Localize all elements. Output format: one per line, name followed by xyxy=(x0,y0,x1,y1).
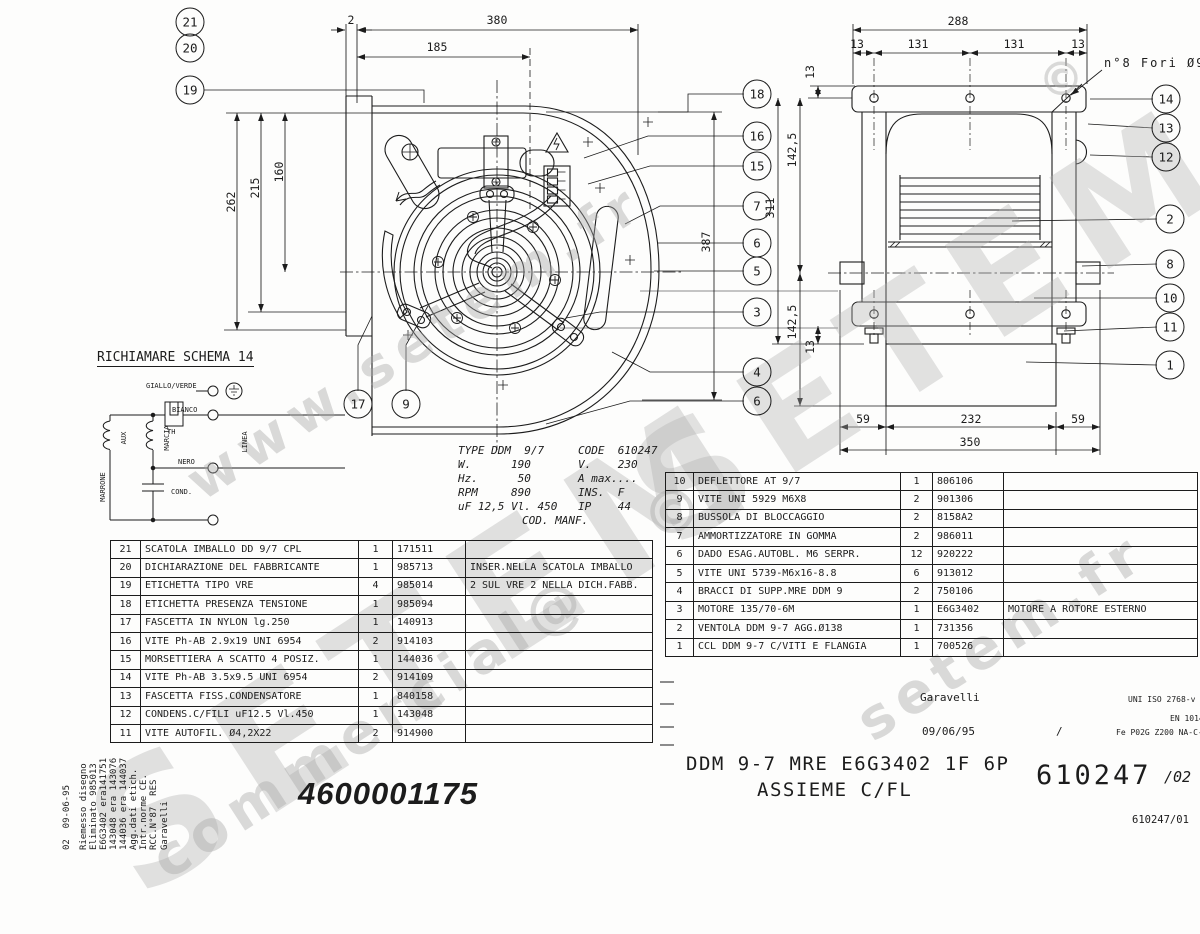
dim-side-s2: 131 xyxy=(1004,37,1025,51)
item-balloon-20: 20 xyxy=(176,34,205,63)
dim-front-h3: 262 xyxy=(224,192,238,213)
balloon-leaders xyxy=(204,90,1157,424)
revision-index: /02 xyxy=(1164,768,1191,786)
wire-label-aux: AUX xyxy=(120,432,128,445)
side-view-geometry xyxy=(828,58,1114,406)
table-row: 4BRACCI DI SUPP.MRE DDM 92750106 xyxy=(666,583,1198,601)
table-row: 6DADO ESAG.AUTOBL. M6 SERPR.12920222 xyxy=(666,546,1198,564)
item-balloon-13: 13 xyxy=(1152,114,1181,143)
dim-side-v13t: 13 xyxy=(803,65,817,79)
revision-line-3: E6G3402 era141751 xyxy=(99,758,109,850)
item-balloon-10: 10 xyxy=(1156,284,1185,313)
item-balloon-17: 17 xyxy=(344,390,373,419)
item-balloon-6: 6 xyxy=(743,387,772,416)
table-row: 10DEFLETTORE AT 9/71806106 xyxy=(666,473,1198,491)
revision-line-6: Agg.dati etich. xyxy=(129,769,139,850)
revision-line-9: Garavelli xyxy=(160,801,170,850)
dim-foot-r: 59 xyxy=(1071,412,1085,426)
table-row: 12CONDENS.C/FILI uF12.5 Vl.4501143048 xyxy=(111,706,653,724)
wiring-schematic xyxy=(103,383,345,525)
table-row: 5VITE UNI 5739-M6x16-8.86913012 xyxy=(666,564,1198,582)
item-balloon-18: 18 xyxy=(743,80,772,109)
material-spec: Fe P02G Z200 NA-C- xyxy=(1116,728,1200,737)
table-row: 2VENTOLA DDM 9-7 AGG.Ø1381731356 xyxy=(666,620,1198,638)
revision-line-2: Eliminato 985013 xyxy=(89,763,99,850)
holes-note: n°8 Fori Ø9 xyxy=(1104,56,1200,70)
dim-front-cap: 185 xyxy=(427,40,448,54)
item-balloon-15: 15 xyxy=(743,152,772,181)
dim-foot-c: 232 xyxy=(961,412,982,426)
revision-line-4: 143048 era 143076 xyxy=(109,758,119,850)
table-row: 16VITE Ph-AB 2.9x19 UNI 69542914103 xyxy=(111,632,653,650)
dim-side-top: 288 xyxy=(948,14,969,28)
item-balloon-7: 7 xyxy=(743,192,772,221)
table-row: 13FASCETTA FISS.CONDENSATORE1840158 xyxy=(111,688,653,706)
dim-front-width: 380 xyxy=(487,13,508,27)
dim-foot-l: 59 xyxy=(856,412,870,426)
item-balloon-8: 8 xyxy=(1156,250,1185,279)
type-plate-right-column: CODE 610247 V. 230 A max.... INS. F IP 4… xyxy=(578,444,657,514)
item-balloon-16: 16 xyxy=(743,122,772,151)
item-balloon-11: 11 xyxy=(1156,313,1185,342)
type-plate-footer: COD. MANF. xyxy=(522,514,588,528)
item-balloon-4: 4 xyxy=(743,358,772,387)
item-balloon-14: 14 xyxy=(1152,85,1181,114)
drawing-date: 09/06/95 xyxy=(922,725,975,738)
table-row: 8BUSSOLA DI BLOCCAGGIO28158A2 xyxy=(666,509,1198,527)
part-number: 4600001175 xyxy=(298,776,478,812)
wire-label-linea: LINEA xyxy=(241,431,249,452)
table-row: 18ETICHETTA PRESENZA TENSIONE1985094 xyxy=(111,596,653,614)
dim-front-h2: 215 xyxy=(248,178,262,199)
document-reference: 610247/01 xyxy=(1132,814,1189,826)
table-row: 19ETICHETTA TIPO VRE49850142 SUL VRE 2 N… xyxy=(111,577,653,595)
dim-side-v142b: 142,5 xyxy=(785,305,799,340)
dim-side-v13b: 13 xyxy=(803,340,817,354)
schema-note: RICHIAMARE SCHEMA 14 xyxy=(97,350,254,367)
table-row: 21SCATOLA IMBALLO DD 9/7 CPL1171511 xyxy=(111,541,653,559)
item-balloon-3: 3 xyxy=(743,298,772,327)
table-row: 3MOTORE 135/70-6M1E6G3402MOTORE A ROTORE… xyxy=(666,601,1198,619)
item-balloon-1: 1 xyxy=(1156,351,1185,380)
drawing-code: 610247 xyxy=(1036,760,1152,791)
revision-line-0: 02 09-06-95 xyxy=(62,785,72,850)
dim-front-gap: 2 xyxy=(348,13,355,27)
drawing-title-line1: DDM 9-7 MRE E6G3402 1F 6P xyxy=(686,753,1009,775)
type-plate-left-column: TYPE DDM 9/7 W. 190 Hz. 50 RPM 890 uF 12… xyxy=(458,444,557,514)
dim-side-s1: 131 xyxy=(908,37,929,51)
item-balloon-12: 12 xyxy=(1152,143,1181,172)
parts-table-right: 10DEFLETTORE AT 9/718061069VITE UNI 5929… xyxy=(665,472,1198,657)
wire-label-cond: COND. xyxy=(171,488,192,496)
title-block-ticks xyxy=(660,682,674,745)
table-row: 20DICHIARAZIONE DEL FABBRICANTE1985713IN… xyxy=(111,559,653,577)
wire-label-marrone: MARRONE xyxy=(99,472,107,502)
table-row: 1CCL DDM 9-7 C/VITI E FLANGIA1700526 xyxy=(666,638,1198,656)
revision-line-5: 144036 era 144037 xyxy=(119,758,129,850)
drawing-title-line2: ASSIEME C/FL xyxy=(757,779,912,801)
dim-side-v142a: 142,5 xyxy=(785,133,799,168)
dim-front-height: 387 xyxy=(699,232,713,253)
standard-iso: UNI ISO 2768-v xyxy=(1128,695,1195,704)
parts-table-left: 21SCATOLA IMBALLO DD 9/7 CPL117151120DIC… xyxy=(110,540,653,743)
dim-front-h1: 160 xyxy=(272,162,286,183)
table-row: 14VITE Ph-AB 3.5x9.5 UNI 69542914109 xyxy=(111,669,653,687)
dim-foot-total: 350 xyxy=(960,435,981,449)
author-name: Garavelli xyxy=(920,691,980,704)
revision-line-1: Riemesso disegno xyxy=(79,763,89,850)
standard-en: EN 1014 xyxy=(1170,714,1200,723)
wire-label-giallo-verde: GIALLO/VERDE xyxy=(146,382,197,390)
table-row: 7AMMORTIZZATORE IN GOMMA2986011 xyxy=(666,528,1198,546)
table-row: 11VITE AUTOFIL. Ø4,2X222914900 xyxy=(111,724,653,742)
item-balloon-21: 21 xyxy=(176,8,205,37)
table-row: 15MORSETTIERA A SCATTO 4 POSIZ.1144036 xyxy=(111,651,653,669)
engineering-drawing-sheet: { "watermarks": { "w_www": "www.setem.fr… xyxy=(0,0,1200,855)
front-view-geometry xyxy=(340,48,682,450)
item-balloon-2: 2 xyxy=(1156,205,1185,234)
item-balloon-19: 19 xyxy=(176,76,205,105)
table-row: 9VITE UNI 5929 M6X82901306 xyxy=(666,491,1198,509)
table-row: 17FASCETTA IN NYLON lg.2501140913 xyxy=(111,614,653,632)
dim-side-e1: 13 xyxy=(850,37,864,51)
wire-label-nero: NERO xyxy=(178,458,195,466)
dim-side-e2: 13 xyxy=(1071,37,1085,51)
wire-label-bianco: BIANCO xyxy=(172,406,197,414)
revision-line-8: RCC.N°87 RES xyxy=(149,780,159,850)
scale-separator: / xyxy=(1056,725,1063,738)
item-balloon-6: 6 xyxy=(743,229,772,258)
wire-label-marcia: MARCIA xyxy=(163,425,171,450)
item-balloon-9: 9 xyxy=(392,390,421,419)
revision-line-7: Intr.norme CE. xyxy=(139,774,149,850)
item-balloon-5: 5 xyxy=(743,257,772,286)
